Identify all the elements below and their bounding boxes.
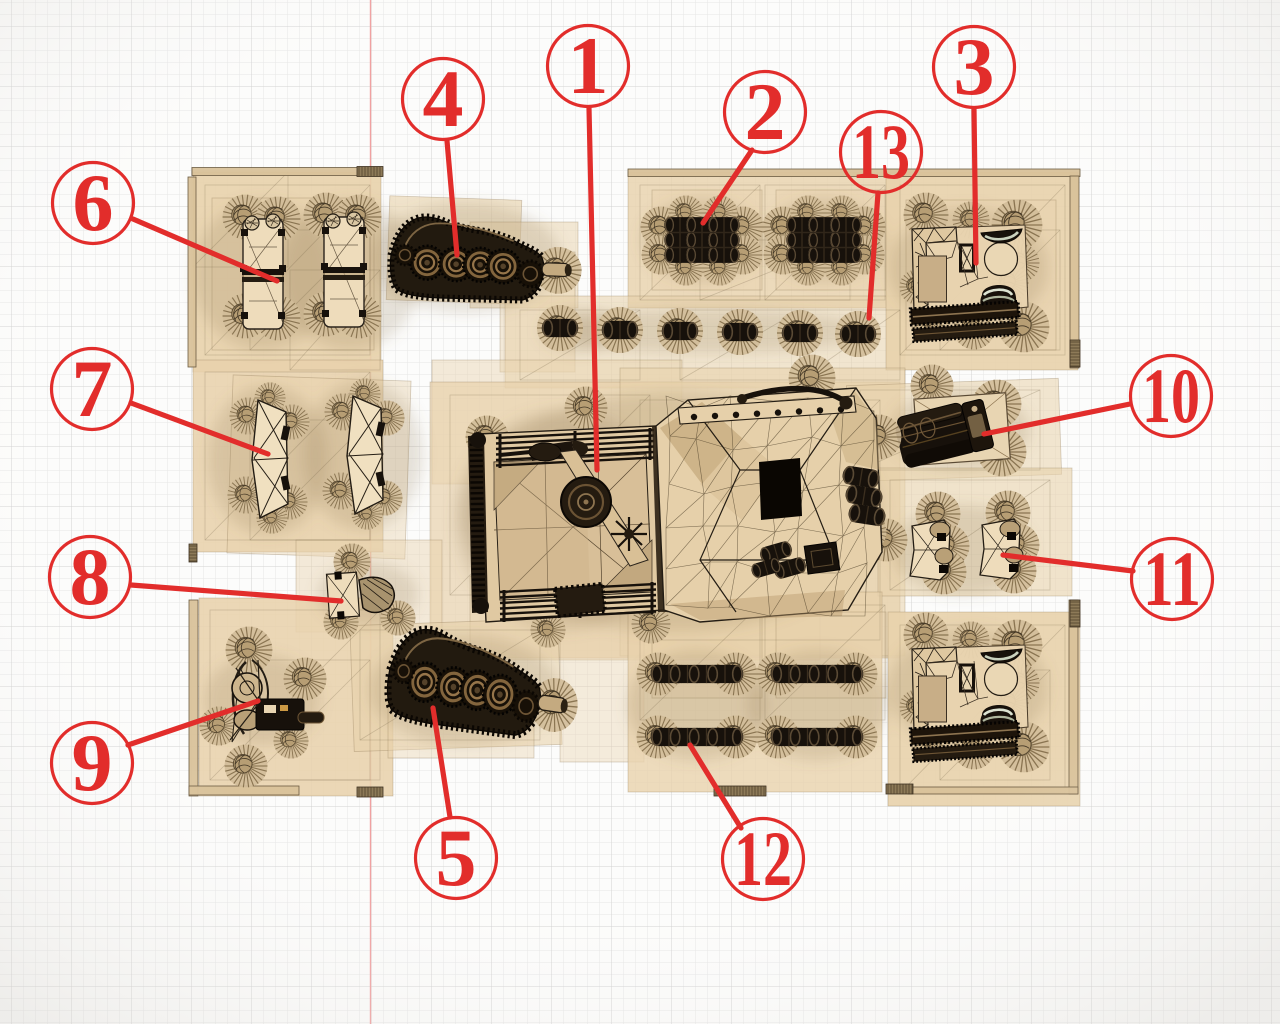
svg-text:11: 11 <box>1143 535 1201 622</box>
svg-text:12: 12 <box>734 815 792 902</box>
svg-text:8: 8 <box>70 531 111 622</box>
svg-text:6: 6 <box>73 157 114 248</box>
svg-text:9: 9 <box>72 717 113 808</box>
svg-text:13: 13 <box>852 108 910 195</box>
svg-text:4: 4 <box>423 53 464 144</box>
svg-text:2: 2 <box>745 66 786 157</box>
svg-text:3: 3 <box>954 21 995 112</box>
svg-text:5: 5 <box>436 812 477 903</box>
svg-text:7: 7 <box>72 343 113 434</box>
svg-text:10: 10 <box>1142 352 1200 439</box>
svg-text:1: 1 <box>568 20 609 111</box>
